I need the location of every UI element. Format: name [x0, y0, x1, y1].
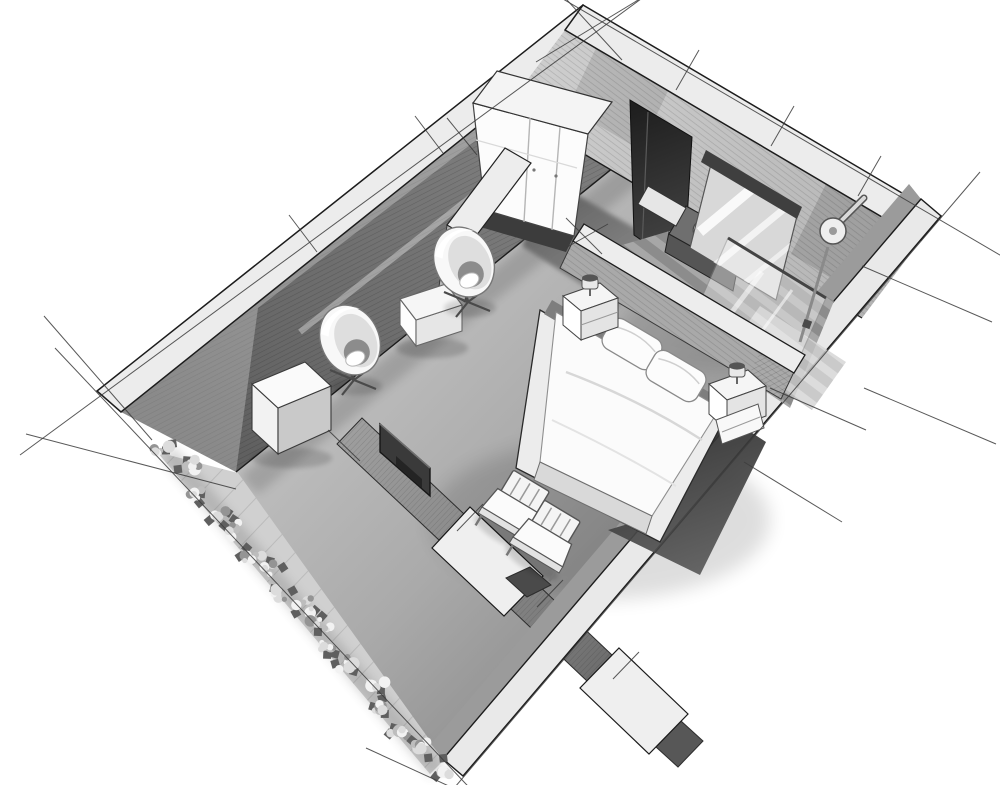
flower-blossom [291, 600, 301, 610]
flower-leaf [173, 465, 182, 474]
room-sketch [0, 0, 1000, 785]
flower-blossom [335, 665, 344, 674]
sketch-canvas [0, 0, 1000, 785]
flower-blossom [307, 595, 313, 601]
flower-blossom [225, 526, 234, 535]
flower-blossom [320, 642, 329, 651]
flower-blossom [163, 440, 175, 452]
flower-blossom [416, 743, 427, 754]
flower-leaf [424, 753, 433, 762]
flower-leaf [439, 754, 448, 763]
flower-blossom [444, 770, 453, 779]
flower-blossom [322, 625, 328, 631]
flower-blossom [309, 606, 314, 611]
flower-blossom [398, 726, 406, 734]
flower-blossom [347, 657, 359, 669]
flower-blossom [372, 683, 380, 691]
flower-blossom [301, 600, 306, 605]
flower-blossom [191, 491, 197, 497]
flower-blossom [190, 455, 200, 465]
flower-blossom [270, 584, 282, 596]
flower-blossom [282, 597, 287, 602]
flower-blossom [269, 559, 278, 568]
flower-blossom [379, 676, 391, 688]
flower-leaf [314, 628, 322, 636]
flower-blossom [377, 705, 387, 715]
flower-blossom [242, 558, 247, 563]
